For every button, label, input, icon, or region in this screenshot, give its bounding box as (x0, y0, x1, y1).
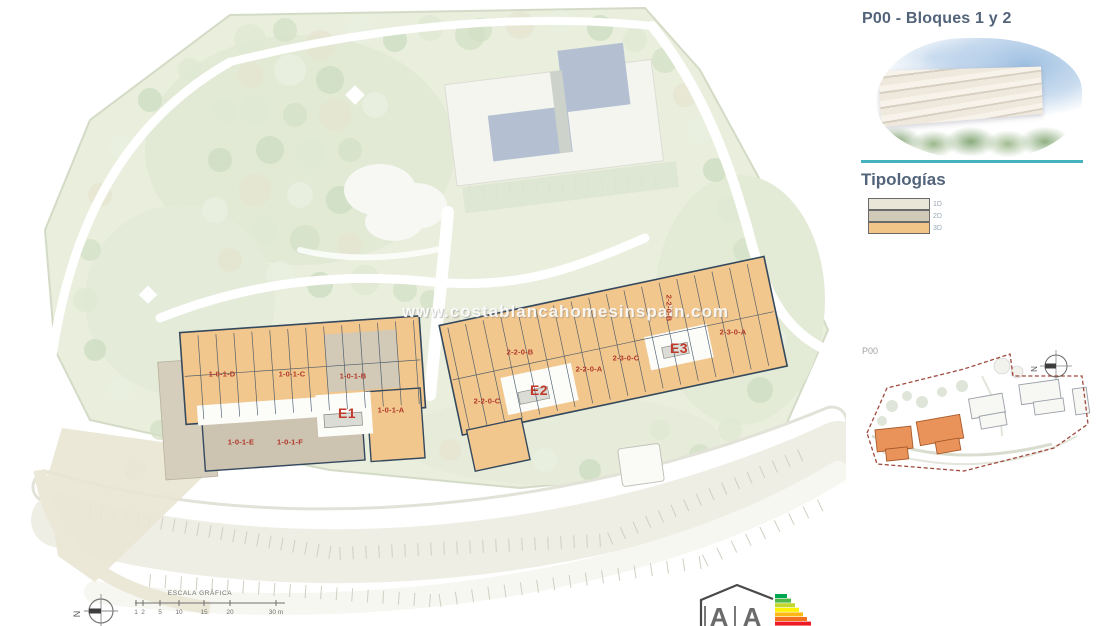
scale-tick-label: 30 m (269, 609, 283, 616)
building-render-image (876, 38, 1082, 160)
unit-label: 2-3-0-A (720, 328, 747, 337)
legend-label: 3D (933, 225, 942, 232)
energy-letter: A (743, 602, 762, 626)
block-label: E3 (670, 340, 688, 356)
block-label: E2 (530, 382, 548, 398)
energy-certificate-icon: A A (701, 585, 811, 626)
scale-bar-title: ESCALA GRÁFICA (120, 590, 280, 597)
scale-tick-label: 5 (158, 609, 162, 616)
scale-tick-label: 2 (141, 609, 145, 616)
unit-label: 1-0-1-F (277, 438, 303, 447)
unit-label: 1-0-1-B (340, 372, 367, 381)
legend-swatch-1d (868, 198, 930, 210)
unit-label: 1-0-1-D (209, 370, 236, 379)
legend-row: 1D (868, 198, 942, 210)
unit-label: 1-0-1-C (279, 370, 306, 379)
minimap-north-arrow: N (1030, 350, 1072, 382)
minimap-plan-label: P00 (862, 346, 878, 356)
teal-divider (861, 160, 1083, 163)
legend-swatch-2d (868, 210, 930, 222)
block-label: E1 (338, 405, 356, 421)
building-e1 (156, 316, 430, 480)
scale-tick-label: 15 (200, 609, 207, 616)
energy-letter: A (710, 602, 729, 626)
legend-row: 3D (868, 222, 942, 234)
vegetation-sketch (876, 119, 1082, 158)
scale-tick-label: 20 (226, 609, 233, 616)
unit-label: 2-2-0-A (576, 365, 603, 374)
unit-label: 1-0-1-E (228, 438, 254, 447)
minimap-north-label: N (1030, 366, 1039, 372)
side-panel: P00 - Bloques 1 y 2 Tipologías 1D 2D 3D … (846, 0, 1110, 626)
kiosk-building (618, 443, 665, 486)
unit-label: 2-2-0-B (665, 295, 674, 322)
unit-label: 1-0-1-A (378, 406, 405, 415)
north-label: N (72, 611, 82, 618)
unit-label: 2-3-0-C (613, 354, 640, 363)
typologies-title: Tipologías (861, 170, 946, 190)
typologies-legend: 1D 2D 3D (868, 198, 942, 234)
legend-label: 1D (933, 201, 942, 208)
site-minimap: P00 N (852, 336, 1108, 506)
unit-label: 2-2-0-B (507, 348, 534, 357)
scale-tick-label: 1 (134, 609, 138, 616)
site-plan: N A A www.costablancahomesinspain.com ES… (0, 0, 846, 626)
legend-row: 2D (868, 210, 942, 222)
page-title: P00 - Bloques 1 y 2 (862, 10, 1012, 28)
legend-swatch-3d (868, 222, 930, 234)
unit-label: 2-2-0-C (474, 397, 501, 406)
scale-tick-label: 10 (175, 609, 182, 616)
energy-scale-bars (775, 594, 811, 626)
legend-label: 2D (933, 213, 942, 220)
pool (557, 43, 630, 113)
